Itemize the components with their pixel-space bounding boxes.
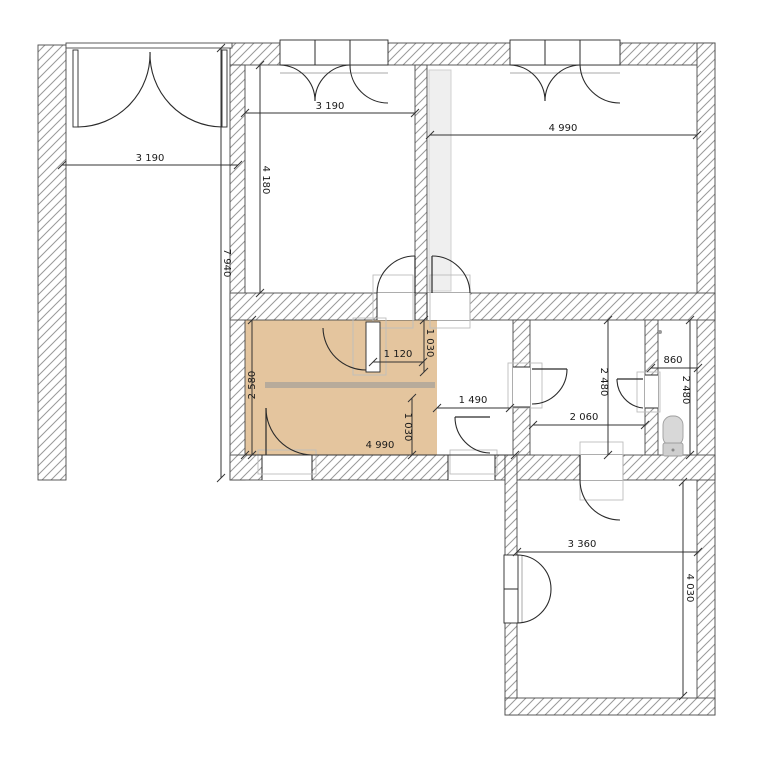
dimension-label: 2 060: [570, 412, 599, 423]
highlight-room-door-leaf: [366, 322, 380, 372]
top-rooms-partition: [415, 65, 427, 293]
dimension-label: 860: [663, 355, 682, 366]
dimension-label: 2 580: [247, 371, 258, 400]
door-opening-top-middle-room: [377, 293, 415, 320]
door-swing-arc: [377, 256, 415, 293]
toilet-bowl: [663, 416, 683, 446]
door-swing-arc: [617, 379, 643, 408]
dimension-label: 3 360: [568, 539, 597, 550]
door-opening-top-right-room: [427, 293, 470, 320]
bottom-room-bottom-wall: [505, 698, 715, 715]
window-top-right-room: [510, 40, 620, 65]
window-top-middle-room: [280, 40, 388, 65]
dimension-label: 4 990: [549, 123, 578, 134]
dimension-label: 2 480: [598, 368, 609, 397]
entry-lintel: [66, 43, 232, 48]
door-opening-bottom-room: [580, 455, 623, 480]
door-opening-highlight-room: [262, 455, 312, 480]
dimension-label: 3 190: [316, 101, 345, 112]
entry-door-left-swing-arc: [78, 52, 150, 127]
middle-wall: [230, 293, 715, 320]
window-casement-arc: [545, 65, 580, 101]
door-swing-arc: [455, 417, 490, 453]
shelf-furniture: [265, 382, 435, 388]
floor-plan-drawing: 3 1907 9403 1904 1804 9902 5801 1201 030…: [0, 0, 772, 772]
door-swing-arc: [532, 369, 567, 404]
dimension-label: 1 030: [424, 329, 435, 358]
dimension-label: 4 990: [366, 440, 395, 451]
dimension-label: 4 180: [260, 166, 271, 195]
dimension-label: 1 490: [459, 395, 488, 406]
toilet-flush-button: [672, 449, 675, 452]
dimension-label: 1 030: [402, 413, 413, 442]
door-opening-wc: [645, 375, 658, 408]
outbuilding-left-wall: [38, 45, 66, 480]
window-casement-arc: [280, 65, 315, 101]
window-casement-arc: [315, 65, 350, 101]
window-casement-arc: [350, 65, 388, 103]
entry-door-left-leaf: [73, 50, 78, 127]
dimension-label: 3 190: [136, 153, 165, 164]
dimension-label: 4 030: [684, 574, 695, 603]
entry-door-right-swing-arc: [150, 52, 222, 127]
dimension-label: 2 480: [680, 376, 691, 405]
door-opening-hall: [448, 455, 495, 480]
entry-door-right-leaf: [222, 50, 227, 127]
window-casement-arc: [580, 65, 620, 103]
floor-drain-dot: [658, 330, 662, 334]
dimension-label: 1 120: [384, 349, 413, 360]
door-opening-bathroom: [513, 367, 530, 407]
right-wall: [697, 43, 715, 715]
floor-plan: 3 1907 9403 1904 1804 9902 5801 1201 030…: [0, 0, 772, 772]
dimension-label: 7 940: [221, 249, 232, 278]
window-casement-arc: [510, 65, 545, 101]
